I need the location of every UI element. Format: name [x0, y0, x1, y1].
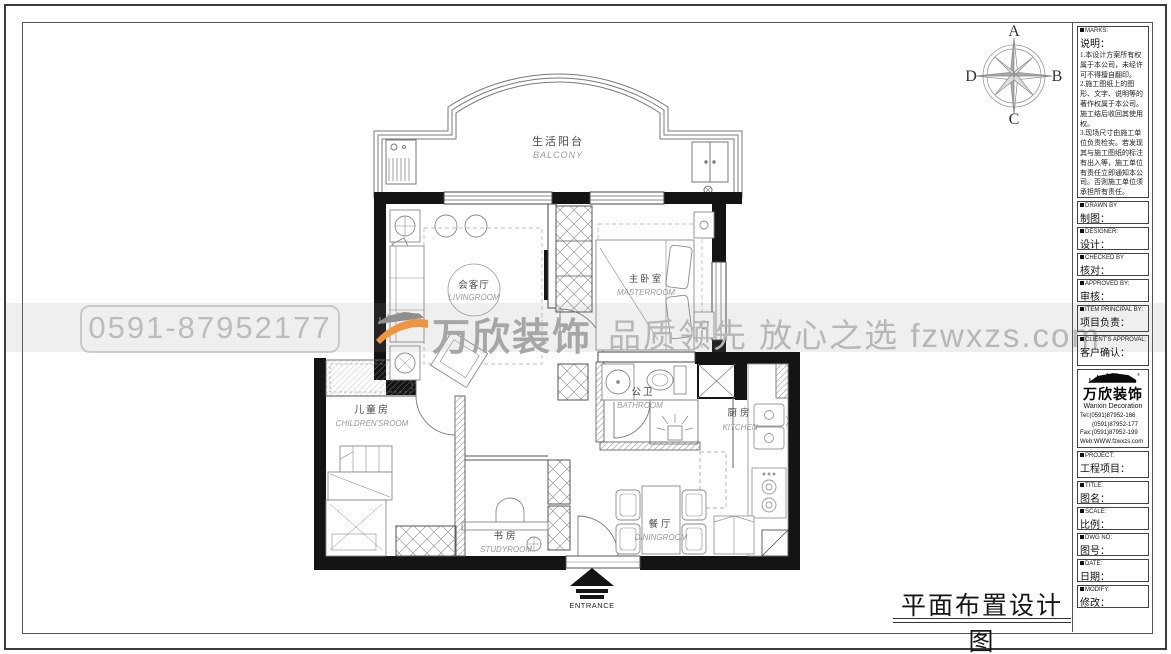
project-section: PROJECT: 工程项目： [1077, 451, 1149, 478]
title-block: MARKS: 说明： 1.本设计方案所有权属于本公司，未经许可不得擅自翻印。 2… [1072, 22, 1152, 632]
entrance [566, 556, 640, 599]
scale-label-cn: 比例： [1080, 516, 1146, 530]
balcony-label-cn: 生活阳台 [532, 134, 584, 148]
company-logo-icon: ® [1086, 371, 1140, 384]
study-label-cn: 书房 [493, 530, 518, 542]
square-bullet-icon [1080, 483, 1084, 487]
dining-label-cn: 餐厅 [648, 518, 673, 530]
project-label-en: PROJECT: [1080, 453, 1146, 459]
square-bullet-icon [1080, 255, 1084, 259]
company-web: Web:WWW.fzwxzs.com [1080, 438, 1146, 447]
modify-section: MODIFY: 修改： [1077, 585, 1149, 608]
square-bullet-icon [1080, 337, 1084, 341]
date-label-en: DATE: [1080, 561, 1146, 567]
kitchen-label-cn: 厨房 [727, 407, 752, 419]
watermark-logo-icon [374, 308, 430, 348]
entrance-arrow [570, 568, 614, 586]
scale-label-en: SCALE: [1080, 509, 1146, 515]
drawing-title-section: TITLE: 图名： [1077, 481, 1149, 504]
item-principal-section: ITEM PRINCIPAL BY: 项目负责： [1077, 305, 1149, 332]
square-bullet-icon [1080, 307, 1084, 311]
balcony-label-en: BALCONY [533, 150, 583, 160]
square-bullet-icon [1080, 587, 1084, 591]
company-tel-1: Tel:(0591)87952-166 [1080, 412, 1146, 421]
compass-letter-a: A [1008, 24, 1020, 40]
marks-label-cn: 说明： [1080, 35, 1146, 50]
watermark-brand: 万欣装饰 [432, 306, 592, 361]
date-label-cn: 日期： [1080, 568, 1146, 582]
item-principal-label-en: ITEM PRINCIPAL BY: [1080, 307, 1146, 313]
living-label-en: LIVINGROOM [448, 293, 499, 302]
drawn-by-label-en: DRAWN BY [1080, 203, 1146, 209]
modify-label-cn: 修改： [1080, 594, 1146, 608]
checked-by-label-en: CHECKED BY [1080, 255, 1146, 261]
item-principal-label-cn: 项目负责： [1080, 314, 1146, 329]
company-logo-section: ® 万欣装饰 Wanxin Decoration Tel:(0591)87952… [1077, 369, 1149, 448]
kitchen-label-en: KITCHEN [722, 423, 757, 432]
bathroom-label-cn: 公卫 [631, 387, 654, 398]
company-name-en: Wanxin Decoration [1080, 403, 1146, 410]
note-1: 1.本设计方案所有权属于本公司，未经许可不得擅自翻印。 [1080, 51, 1146, 80]
sheet-title-underline-1 [893, 618, 1071, 619]
compass-rose: A B C D [966, 24, 1062, 124]
marks-notes: 1.本设计方案所有权属于本公司，未经许可不得擅自翻印。 2.施工图纸上的图形、文… [1080, 51, 1146, 198]
marks-section: MARKS: 说明： 1.本设计方案所有权属于本公司，未经许可不得擅自翻印。 2… [1077, 26, 1149, 198]
company-tel-2: (0591)87952-177 [1080, 421, 1146, 430]
compass-letter-c: C [1009, 111, 1020, 124]
note-3: 3.现场尺寸由施工单位负责检实。若发现其与施工图纸的标注有出入等，施工单位有责任… [1080, 129, 1146, 198]
marks-label-en: MARKS: [1080, 28, 1146, 34]
master-label-cn: 主卧室 [629, 273, 664, 285]
square-bullet-icon [1080, 203, 1084, 207]
svg-text:®: ® [1137, 373, 1140, 377]
study-furniture [462, 498, 548, 551]
compass-letter-d: D [966, 68, 977, 85]
duct-shaft [698, 364, 735, 398]
square-bullet-icon [1080, 561, 1084, 565]
square-bullet-icon [1080, 28, 1084, 32]
designer-section: DESIGNER: 设计： [1077, 227, 1149, 250]
watermark-phone: 0591-87952177 [80, 305, 340, 353]
bathroom-label-en: BATHROOM [617, 401, 663, 410]
children-furniture [326, 446, 392, 556]
scale-section: SCALE: 比例： [1077, 507, 1149, 530]
checked-by-section: CHECKED BY 核对： [1077, 253, 1149, 276]
drawn-by-section: DRAWN BY 制图： [1077, 201, 1149, 224]
watermark-slogan: 品质领先 放心之选 fzwxzs.com [608, 309, 1101, 357]
square-bullet-icon [1080, 229, 1084, 233]
square-bullet-icon [1080, 453, 1084, 457]
dwg-no-label-cn: 图号： [1080, 542, 1146, 556]
drawing-sheet: 生活阳台 BALCONY 会客厅 LIVINGROOM 主卧室 MASTERRO… [0, 0, 1171, 654]
client-approval-label-en: CLIENT'S APPROVAL: [1080, 337, 1146, 343]
designer-label-cn: 设计： [1080, 236, 1146, 250]
drawing-title-label-cn: 图名： [1080, 490, 1146, 504]
project-label-cn: 工程项目： [1080, 460, 1146, 475]
compass-letter-b: B [1052, 68, 1062, 85]
square-bullet-icon [1080, 535, 1084, 539]
sheet-title-underline-2 [893, 622, 1071, 623]
approved-by-label-cn: 审核： [1080, 288, 1146, 302]
date-section: DATE: 日期： [1077, 559, 1149, 582]
square-bullet-icon [1080, 281, 1084, 285]
drawing-title-label-en: TITLE: [1080, 483, 1146, 489]
company-fax: Fax:(0591)87952-199 [1080, 429, 1146, 438]
client-approval-label-cn: 客户确认： [1080, 344, 1146, 359]
dining-label-en: DININGROOM [635, 533, 688, 542]
children-label-en: CHILDREN'SROOM [336, 419, 409, 428]
client-approval-section: CLIENT'S APPROVAL: 客户确认： [1077, 335, 1149, 366]
study-label-en: STUDYROOM [480, 545, 532, 554]
dwg-no-label-en: DWG NO: [1080, 535, 1146, 541]
sheet-title: 平面布置设计图 [893, 586, 1071, 654]
drawn-by-label-cn: 制图： [1080, 210, 1146, 224]
children-label-cn: 儿童房 [354, 403, 390, 416]
designer-label-en: DESIGNER: [1080, 229, 1146, 235]
note-2: 2.施工图纸上的图形、文字、说明等的著作权属于本公司。施工结后收回其使用权。 [1080, 80, 1146, 129]
washing-machine [386, 140, 416, 184]
approved-by-label-en: APPROVED BY: [1080, 281, 1146, 287]
square-bullet-icon [1080, 509, 1084, 513]
checked-by-label-cn: 核对： [1080, 262, 1146, 276]
approved-by-section: APPROVED BY: 审核： [1077, 279, 1149, 302]
living-label-cn: 会客厅 [458, 279, 490, 291]
company-contact: Tel:(0591)87952-166 (0591)87952-177 Fax:… [1080, 412, 1146, 447]
modify-label-en: MODIFY: [1080, 587, 1146, 593]
company-name-cn: 万欣装饰 [1080, 389, 1146, 403]
dwg-no-section: DWG NO: 图号： [1077, 533, 1149, 556]
master-label-en: MASTERROOM [617, 288, 676, 297]
entrance-label: ENTRANCE [569, 601, 614, 610]
balcony-cabinet [692, 142, 728, 194]
